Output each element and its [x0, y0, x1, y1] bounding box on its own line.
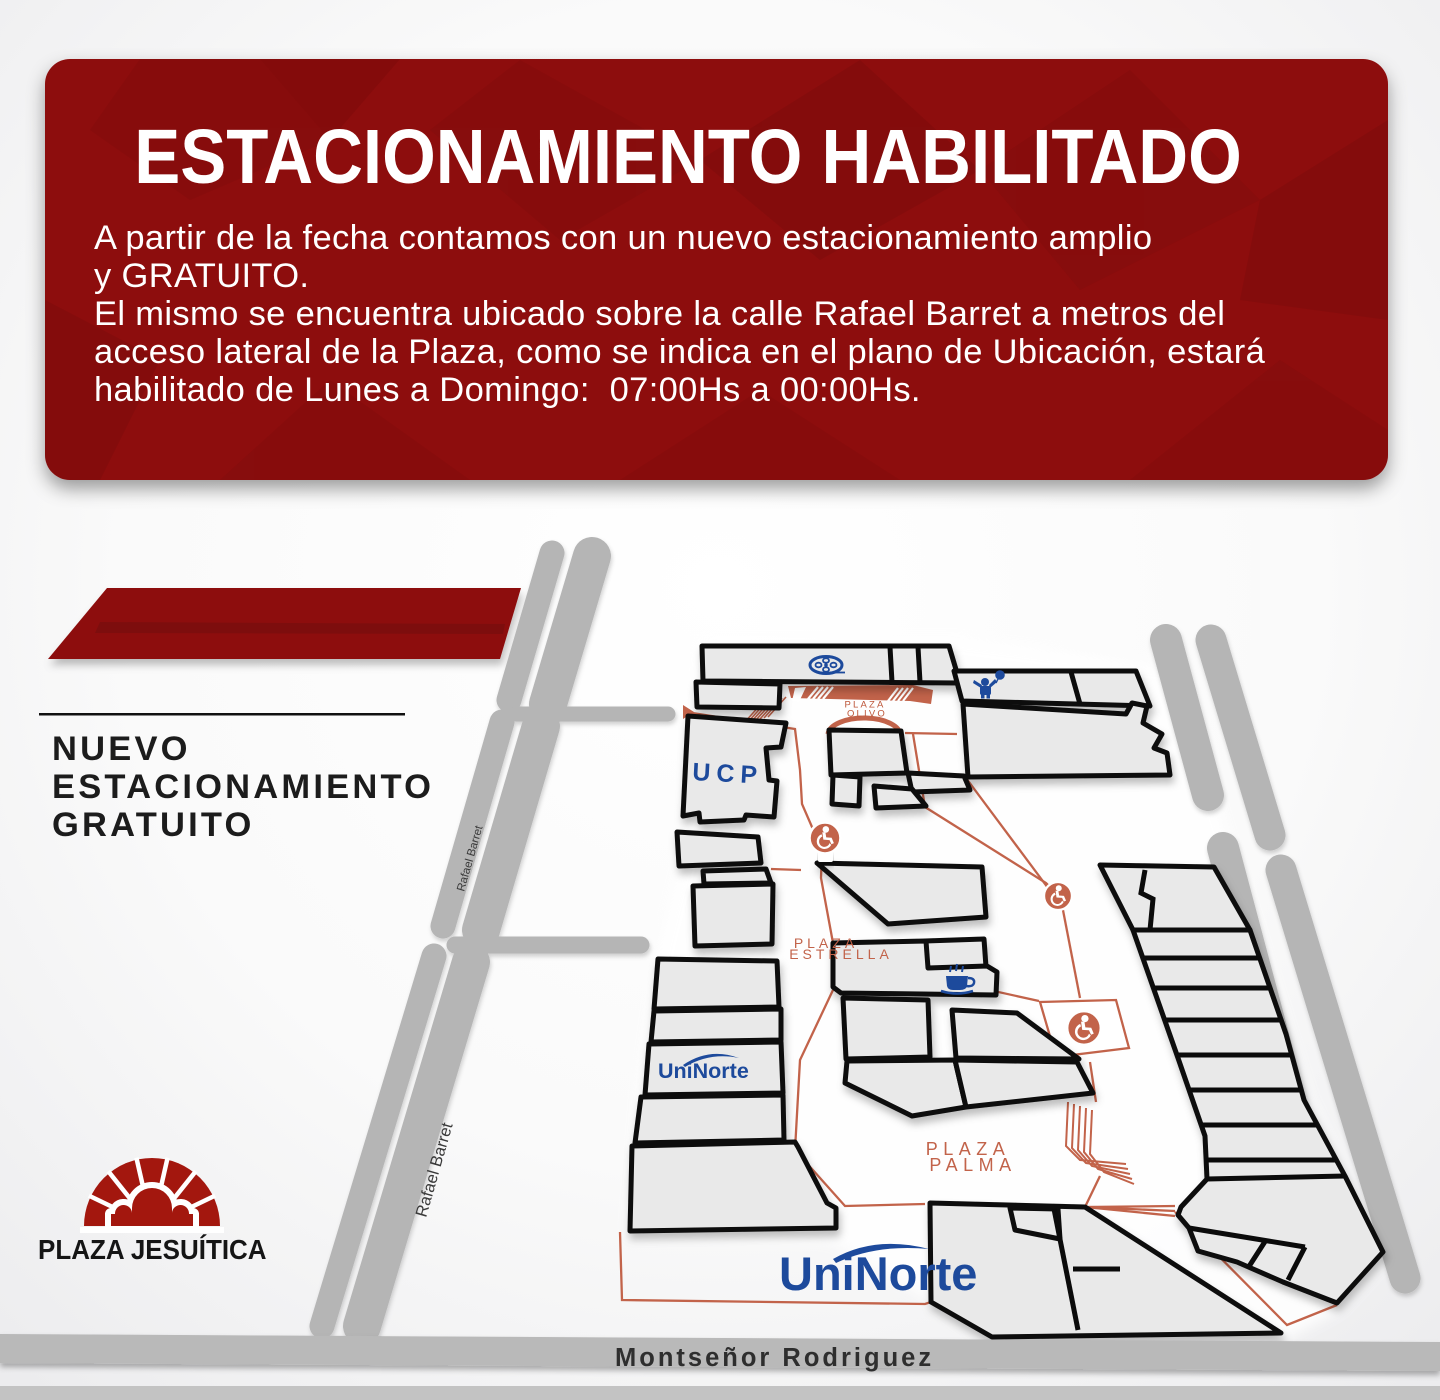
svg-text:habilitado de Lunes a Domingo:: habilitado de Lunes a Domingo: 07:00Hs a… [94, 371, 921, 409]
svg-text:NUEVO: NUEVO [52, 730, 191, 768]
svg-text:Montseñor Rodriguez: Montseñor Rodriguez [615, 1344, 934, 1372]
svg-text:UniNorte: UniNorte [779, 1247, 977, 1300]
svg-text:GRATUITO: GRATUITO [52, 806, 255, 844]
svg-text:UniNorte: UniNorte [658, 1059, 749, 1083]
svg-text:El mismo se encuentra ubicado: El mismo se encuentra ubicado sobre la c… [94, 295, 1225, 333]
svg-text:y GRATUITO.: y GRATUITO. [94, 257, 309, 295]
svg-text:ESTACIONAMIENTO: ESTACIONAMIENTO [52, 768, 434, 806]
svg-text:PLAZA JESUÍTICA: PLAZA JESUÍTICA [38, 1233, 267, 1265]
svg-text:A partir de la fecha contamos: A partir de la fecha contamos con un nue… [94, 219, 1152, 257]
svg-text:UCP: UCP [692, 758, 764, 790]
svg-text:acceso lateral de la Plaza, co: acceso lateral de la Plaza, como se indi… [94, 333, 1266, 371]
svg-text:ESTRELLA: ESTRELLA [789, 946, 893, 962]
svg-text:ESTACIONAMIENTO HABILITADO: ESTACIONAMIENTO HABILITADO [134, 115, 1242, 200]
svg-text:PALMA: PALMA [929, 1155, 1016, 1175]
svg-text:OLIVO: OLIVO [847, 709, 887, 720]
